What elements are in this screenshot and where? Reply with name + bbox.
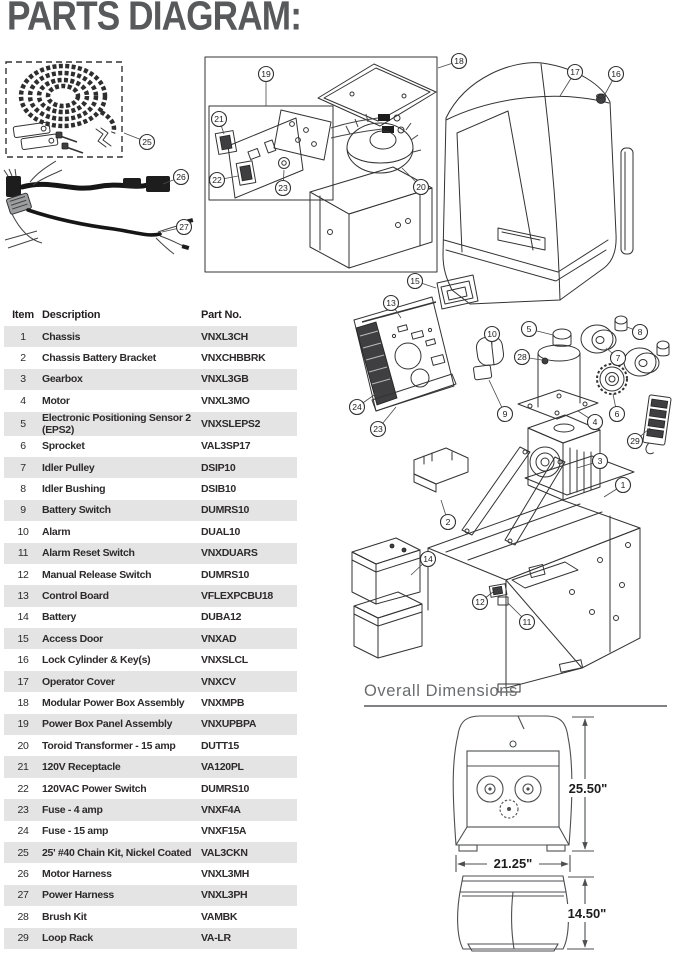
dimensions-front-view: 25.50" 21.25" xyxy=(453,716,612,872)
item-cell: 26 xyxy=(4,863,42,884)
control-board-drawing xyxy=(354,297,456,411)
idler-pulleys-drawing xyxy=(581,316,669,376)
description-cell: Brush Kit xyxy=(42,906,201,927)
table-header-row: Item Description Part No. xyxy=(4,306,297,326)
part-no-cell: DUMRS10 xyxy=(201,564,297,585)
description-cell: Access Door xyxy=(42,628,201,649)
part-no-cell: VNXL3MO xyxy=(201,390,297,411)
item-cell: 9 xyxy=(4,500,42,521)
svg-text:10: 10 xyxy=(487,329,497,339)
part-no-cell: DUMRS10 xyxy=(201,500,297,521)
description-cell: Battery Switch xyxy=(42,500,201,521)
table-row: 28Brush KitVAMBK xyxy=(4,906,297,927)
description-cell: Gearbox xyxy=(42,369,201,390)
table-row: 11Alarm Reset SwitchVNXDUARS xyxy=(4,543,297,564)
table-row: 6SprocketVAL3SP17 xyxy=(4,436,297,457)
item-cell: 17 xyxy=(4,671,42,692)
operator-cover-drawing xyxy=(443,63,633,304)
svg-text:12: 12 xyxy=(475,597,485,607)
svg-text:19: 19 xyxy=(261,69,271,79)
part-no-cell: VNXCHBBRK xyxy=(201,347,297,368)
dimensions-heading: Overall Dimensions xyxy=(364,682,667,707)
description-cell: Chassis xyxy=(42,326,201,347)
part-no-cell: VNXL3CH xyxy=(201,326,297,347)
callout-9: 9 xyxy=(489,380,513,422)
table-row: 9Battery SwitchDUMRS10 xyxy=(4,500,297,521)
item-cell: 25 xyxy=(4,842,42,863)
part-no-cell: VAL3CKN xyxy=(201,842,297,863)
svg-text:22: 22 xyxy=(212,175,222,185)
description-cell: Fuse - 4 amp xyxy=(42,799,201,820)
description-cell: Chassis Battery Bracket xyxy=(42,347,201,368)
svg-text:17: 17 xyxy=(570,67,580,77)
svg-text:26: 26 xyxy=(176,172,186,182)
description-cell: Alarm Reset Switch xyxy=(42,543,201,564)
description-cell: Lock Cylinder & Key(s) xyxy=(42,649,201,670)
item-cell: 24 xyxy=(4,821,42,842)
motor-drawing xyxy=(518,329,598,419)
callout-19: 19 xyxy=(259,67,274,107)
description-cell: Idler Bushing xyxy=(42,478,201,499)
item-cell: 15 xyxy=(4,628,42,649)
item-cell: 8 xyxy=(4,478,42,499)
table-row: 8Idler BushingDSIB10 xyxy=(4,478,297,499)
table-row: 3GearboxVNXL3GB xyxy=(4,369,297,390)
svg-text:14: 14 xyxy=(423,554,433,564)
description-cell: Control Board xyxy=(42,585,201,606)
table-row: 19Power Box Panel AssemblyVNXUPBPA xyxy=(4,714,297,735)
item-cell: 18 xyxy=(4,692,42,713)
callout-5: 5 xyxy=(522,322,554,337)
description-cell: Loop Rack xyxy=(42,928,201,949)
callout-2: 2 xyxy=(441,500,456,530)
item-cell: 4 xyxy=(4,390,42,411)
callout-20: 20 xyxy=(402,168,429,195)
svg-text:4: 4 xyxy=(593,417,598,427)
svg-text:1: 1 xyxy=(621,480,626,490)
callout-4: 4 xyxy=(578,411,603,430)
table-row: 17Operator CoverVNXCV xyxy=(4,671,297,692)
table-row: 10AlarmDUAL10 xyxy=(4,521,297,542)
item-cell: 12 xyxy=(4,564,42,585)
description-cell: Power Box Panel Assembly xyxy=(42,714,201,735)
chain-kit-drawing xyxy=(6,62,122,157)
item-cell: 11 xyxy=(4,543,42,564)
sprocket-drawing xyxy=(597,364,627,394)
callout-17: 17 xyxy=(560,65,583,97)
part-no-cell: VNXL3PH xyxy=(201,885,297,906)
item-cell: 29 xyxy=(4,928,42,949)
svg-text:18: 18 xyxy=(454,56,464,66)
callout-23: 23 xyxy=(371,407,397,437)
item-cell: 21 xyxy=(4,756,42,777)
callout-18: 18 xyxy=(438,54,467,69)
page: { "title": "PARTS DIAGRAM:", "table": { … xyxy=(0,0,676,953)
part-no-cell: VNXL3GB xyxy=(201,369,297,390)
part-no-cell: VNXF15A xyxy=(201,821,297,842)
table-row: 12Manual Release SwitchDUMRS10 xyxy=(4,564,297,585)
item-cell: 2 xyxy=(4,347,42,368)
callout-6: 6 xyxy=(610,394,625,422)
description-cell: 120VAC Power Switch xyxy=(42,778,201,799)
callout-7: 7 xyxy=(606,348,626,366)
svg-text:20: 20 xyxy=(416,182,426,192)
description-cell: Sprocket xyxy=(42,436,201,457)
svg-text:16: 16 xyxy=(611,69,621,79)
item-cell: 22 xyxy=(4,778,42,799)
svg-text:8: 8 xyxy=(638,327,643,337)
item-cell: 27 xyxy=(4,885,42,906)
motor-harness-drawing xyxy=(4,161,170,197)
item-cell: 13 xyxy=(4,585,42,606)
part-no-cell: VFLEXPCBU18 xyxy=(201,585,297,606)
callout-27: 27 xyxy=(162,220,192,235)
part-no-cell: DUAL10 xyxy=(201,521,297,542)
part-no-cell: VNXDUARS xyxy=(201,543,297,564)
part-no-cell: VNXF4A xyxy=(201,799,297,820)
part-no-cell: DUMRS10 xyxy=(201,778,297,799)
table-row: 13Control BoardVFLEXPCBU18 xyxy=(4,585,297,606)
column-header-item: Item xyxy=(4,306,42,326)
item-cell: 3 xyxy=(4,369,42,390)
description-cell: Modular Power Box Assembly xyxy=(42,692,201,713)
table-row: 14BatteryDUBA12 xyxy=(4,607,297,628)
table-row: 16Lock Cylinder & Key(s)VNXSLCL xyxy=(4,649,297,670)
svg-text:9: 9 xyxy=(503,409,508,419)
table-row: 18Modular Power Box AssemblyVNXMPB xyxy=(4,692,297,713)
table-row: 4MotorVNXL3MO xyxy=(4,390,297,411)
part-no-cell: VNXL3MH xyxy=(201,863,297,884)
part-no-cell: DUTT15 xyxy=(201,735,297,756)
part-no-cell: VNXCV xyxy=(201,671,297,692)
callout-8: 8 xyxy=(627,325,648,340)
item-cell: 7 xyxy=(4,457,42,478)
item-cell: 16 xyxy=(4,649,42,670)
table-row: 2525' #40 Chain Kit, Nickel CoatedVAL3CK… xyxy=(4,842,297,863)
svg-text:6: 6 xyxy=(615,409,620,419)
part-no-cell: VNXUPBPA xyxy=(201,714,297,735)
table-row: 21120V ReceptacleVA120PL xyxy=(4,756,297,777)
item-cell: 28 xyxy=(4,906,42,927)
callout-21: 21 xyxy=(212,112,227,135)
item-cell: 1 xyxy=(4,326,42,347)
table-row: 20Toroid Transformer - 15 ampDUTT15 xyxy=(4,735,297,756)
callout-11: 11 xyxy=(508,603,535,630)
item-cell: 19 xyxy=(4,714,42,735)
part-no-cell: VNXMPB xyxy=(201,692,297,713)
description-cell: Power Harness xyxy=(42,885,201,906)
width-dimension-label: 21.25" xyxy=(494,856,533,871)
svg-text:5: 5 xyxy=(527,324,532,334)
svg-text:23: 23 xyxy=(278,183,288,193)
table-row: 15Access DoorVNXAD xyxy=(4,628,297,649)
svg-text:27: 27 xyxy=(179,222,189,232)
item-cell: 20 xyxy=(4,735,42,756)
part-no-cell: DUBA12 xyxy=(201,607,297,628)
part-no-cell: VAMBK xyxy=(201,906,297,927)
item-cell: 10 xyxy=(4,521,42,542)
description-cell: Idler Pulley xyxy=(42,457,201,478)
power-box-assembly-drawing xyxy=(205,57,437,272)
description-cell: 25' #40 Chain Kit, Nickel Coated xyxy=(42,842,201,863)
svg-text:15: 15 xyxy=(410,276,420,286)
description-cell: Operator Cover xyxy=(42,671,201,692)
table-row: 29Loop RackVA-LR xyxy=(4,928,297,949)
power-harness-drawing xyxy=(5,193,193,254)
svg-text:29: 29 xyxy=(630,436,640,446)
description-cell: 120V Receptacle xyxy=(42,756,201,777)
callout-16: 16 xyxy=(604,67,624,97)
table-row: 22120VAC Power SwitchDUMRS10 xyxy=(4,778,297,799)
svg-text:7: 7 xyxy=(616,353,621,363)
table-row: 2Chassis Battery BracketVNXCHBBRK xyxy=(4,347,297,368)
part-no-cell: VNXSLEPS2 xyxy=(201,412,297,436)
description-cell: Battery xyxy=(42,607,201,628)
svg-text:3: 3 xyxy=(598,456,603,466)
battery-drawing xyxy=(352,538,422,658)
chassis-drawing xyxy=(414,447,640,692)
part-no-cell: DSIB10 xyxy=(201,478,297,499)
alarm-drawing xyxy=(473,335,505,380)
description-cell: Alarm xyxy=(42,521,201,542)
table-row: 26Motor HarnessVNXL3MH xyxy=(4,863,297,884)
dimensions-top-view: 14.50" xyxy=(458,876,612,951)
loop-rack-drawing xyxy=(641,395,671,456)
svg-text:13: 13 xyxy=(386,298,396,308)
callout-14: 14 xyxy=(411,552,436,576)
table-row: 27Power HarnessVNXL3PH xyxy=(4,885,297,906)
svg-text:2: 2 xyxy=(446,517,451,527)
description-cell: Fuse - 15 amp xyxy=(42,821,201,842)
description-cell: Motor xyxy=(42,390,201,411)
table-row: 5Electronic Positioning Sensor 2 (EPS2)V… xyxy=(4,412,297,436)
item-cell: 23 xyxy=(4,799,42,820)
callout-15: 15 xyxy=(408,274,437,289)
item-cell: 14 xyxy=(4,607,42,628)
column-header-description: Description xyxy=(42,306,201,326)
callout-10: 10 xyxy=(485,327,500,347)
part-no-cell: VNXAD xyxy=(201,628,297,649)
callout-23: 23 xyxy=(276,170,291,196)
description-cell: Manual Release Switch xyxy=(42,564,201,585)
height-dimension-label: 25.50" xyxy=(569,781,608,796)
part-no-cell: VA120PL xyxy=(201,756,297,777)
callout-25: 25 xyxy=(124,133,155,150)
table-row: 1ChassisVNXL3CH xyxy=(4,326,297,347)
depth-dimension-label: 14.50" xyxy=(568,906,607,921)
item-cell: 6 xyxy=(4,436,42,457)
description-cell: Electronic Positioning Sensor 2 (EPS2) xyxy=(42,412,201,436)
svg-text:28: 28 xyxy=(517,352,527,362)
column-header-part-no: Part No. xyxy=(201,306,297,326)
part-no-cell: VAL3SP17 xyxy=(201,436,297,457)
svg-text:11: 11 xyxy=(523,617,532,627)
part-no-cell: DSIP10 xyxy=(201,457,297,478)
item-cell: 5 xyxy=(4,412,42,436)
svg-text:21: 21 xyxy=(214,114,224,124)
part-no-cell: VNXSLCL xyxy=(201,649,297,670)
description-cell: Motor Harness xyxy=(42,863,201,884)
table-row: 24Fuse - 15 ampVNXF15A xyxy=(4,821,297,842)
description-cell: Toroid Transformer - 15 amp xyxy=(42,735,201,756)
part-no-cell: VA-LR xyxy=(201,928,297,949)
table-row: 7Idler PulleyDSIP10 xyxy=(4,457,297,478)
svg-text:23: 23 xyxy=(373,424,383,434)
parts-table: Item Description Part No. 1ChassisVNXL3C… xyxy=(4,306,297,949)
svg-text:24: 24 xyxy=(352,402,362,412)
svg-text:25: 25 xyxy=(142,137,152,147)
callout-12: 12 xyxy=(473,592,494,610)
table-row: 23Fuse - 4 ampVNXF4A xyxy=(4,799,297,820)
